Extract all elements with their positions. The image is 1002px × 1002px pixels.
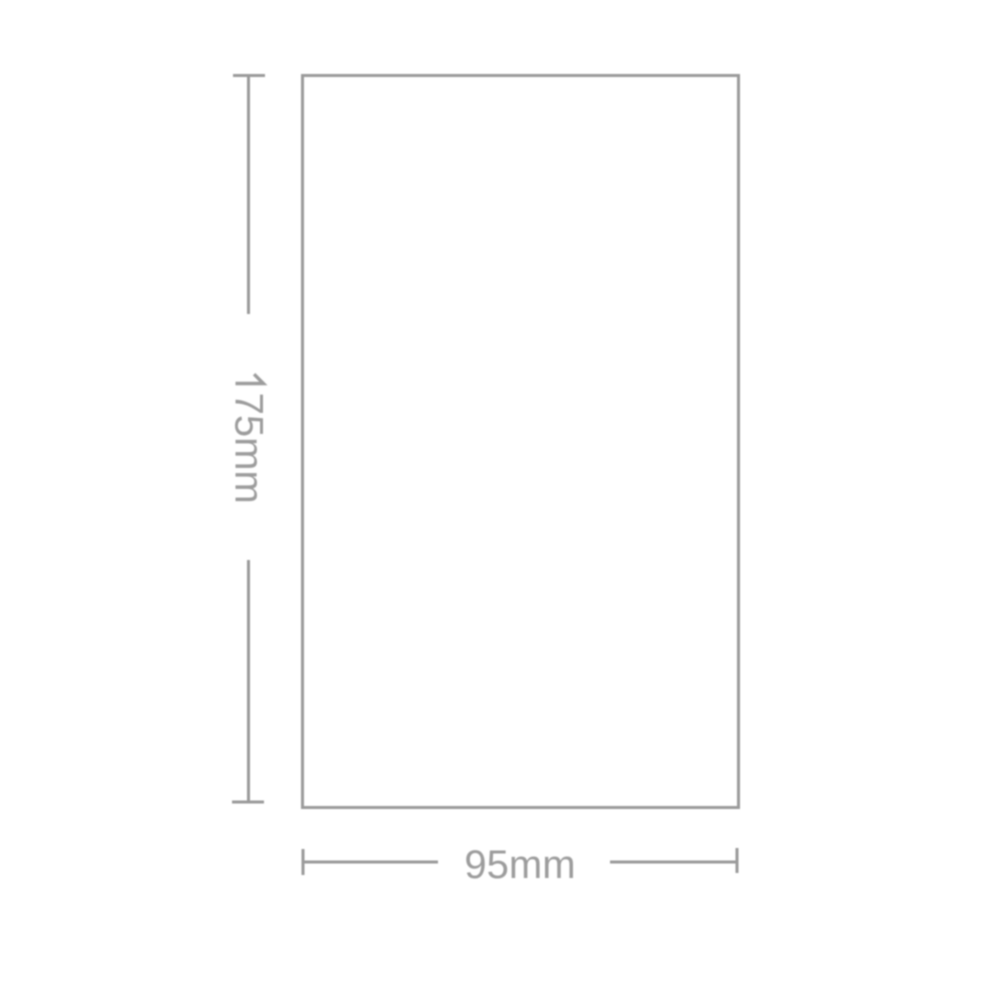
svg-text:95mm: 95mm — [464, 843, 575, 887]
svg-text:75mm: 75mm — [227, 393, 271, 504]
